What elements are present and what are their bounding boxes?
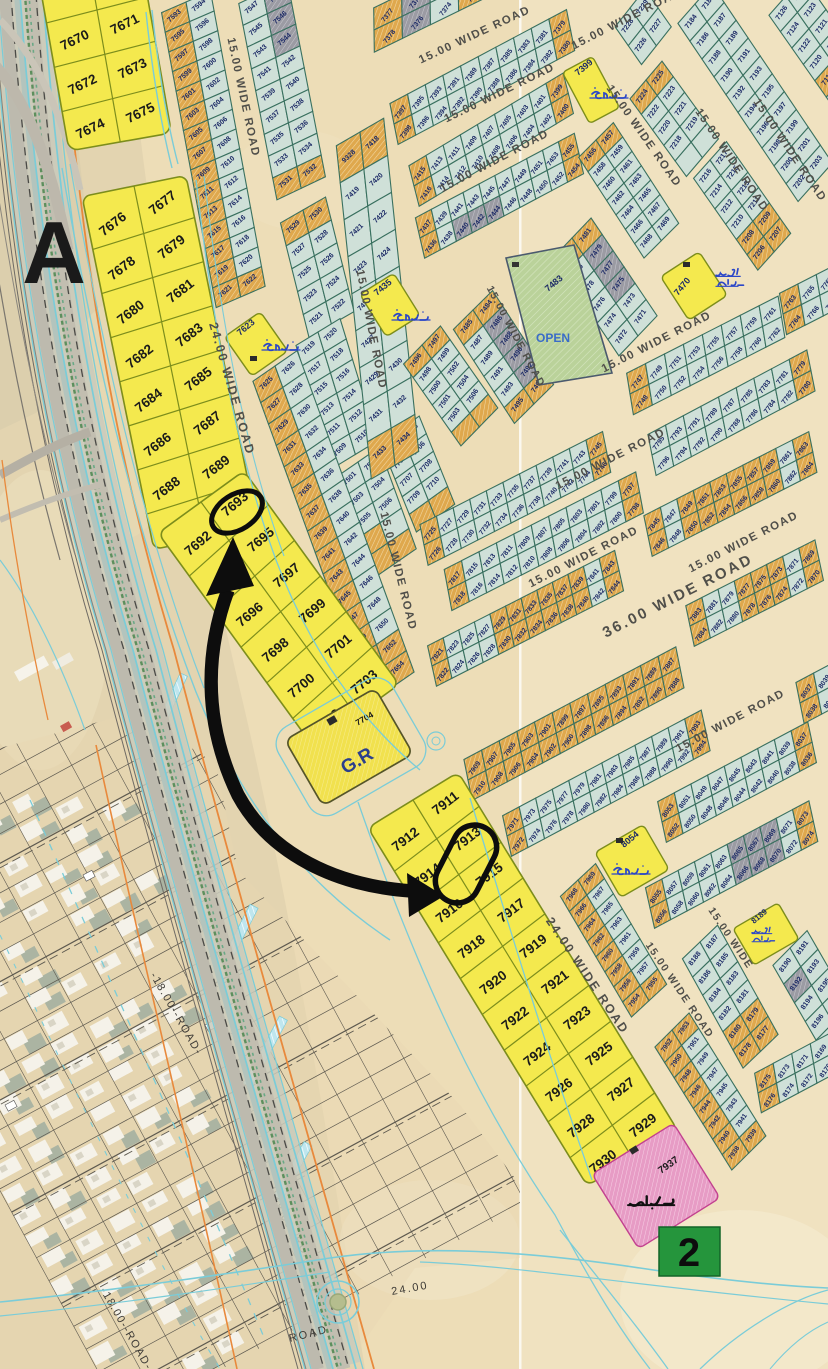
svg-text:2: 2 [678, 1231, 700, 1275]
svg-text:OPEN: OPEN [536, 331, 570, 345]
svg-text:A: A [22, 203, 86, 302]
